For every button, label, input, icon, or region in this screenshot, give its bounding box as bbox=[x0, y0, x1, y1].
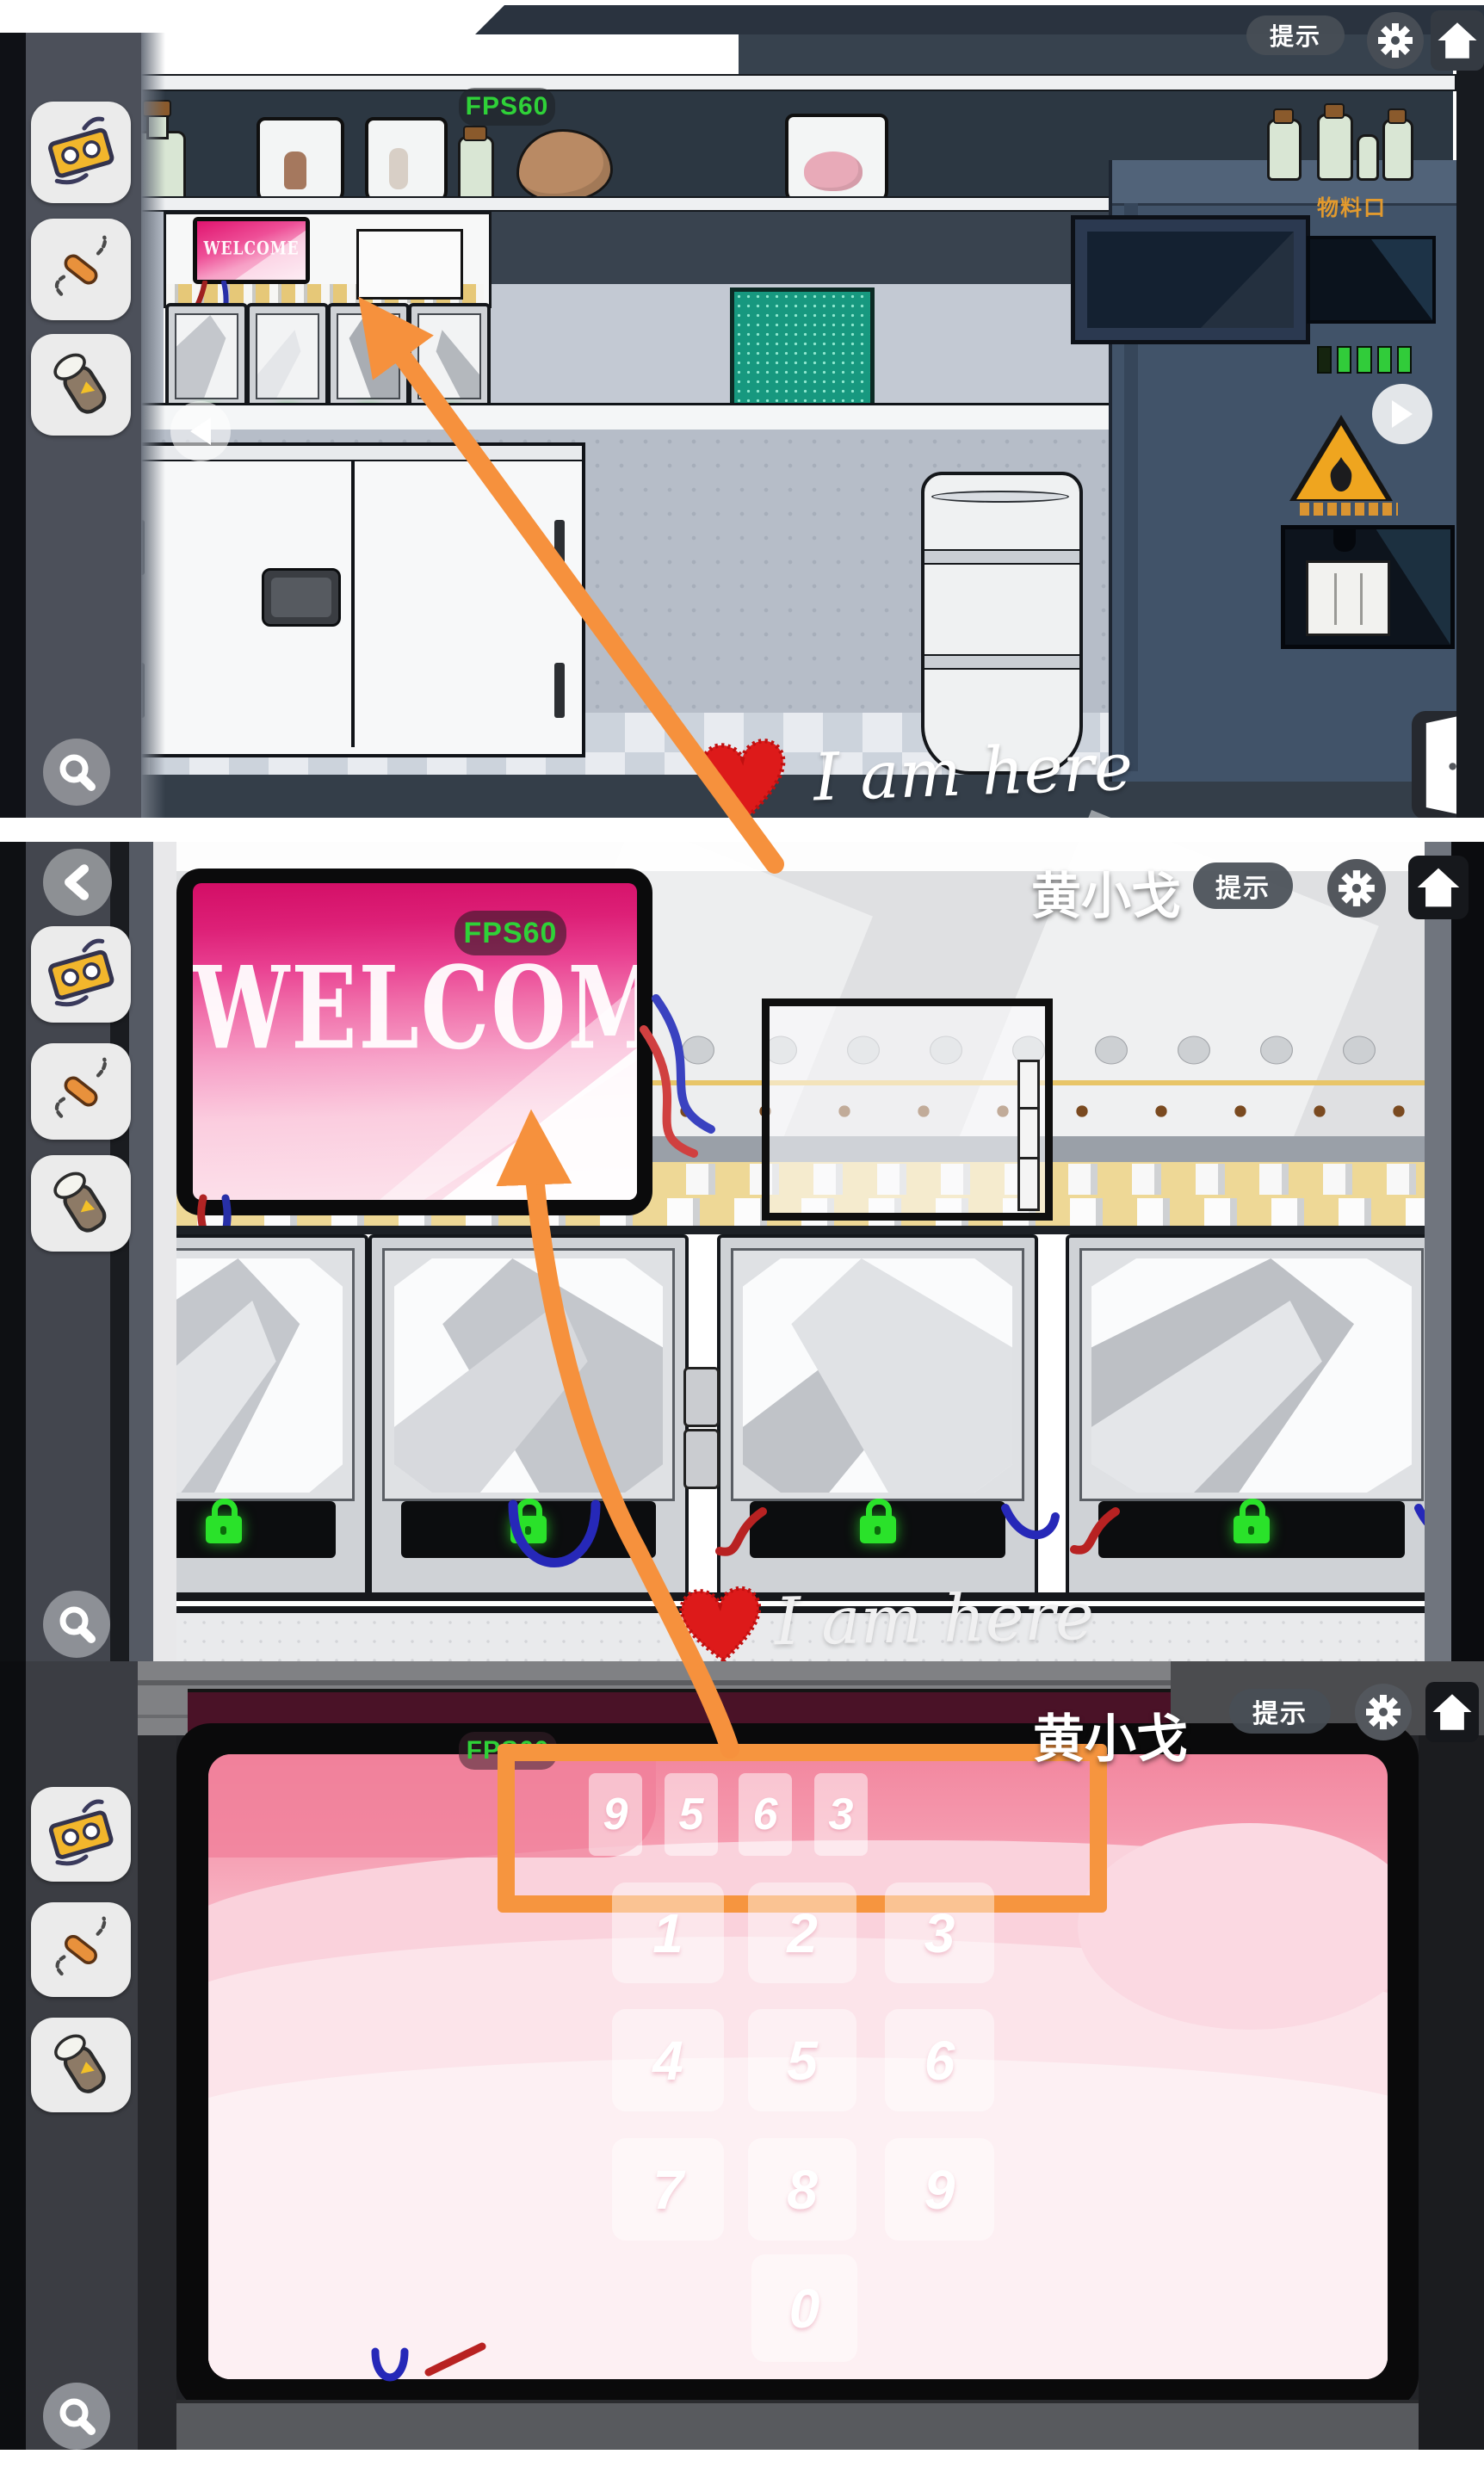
home-button[interactable] bbox=[1425, 1682, 1479, 1742]
hinge-plate-top bbox=[683, 1367, 720, 1427]
keypad-button-6[interactable]: 6 bbox=[885, 2009, 994, 2111]
slot-shade bbox=[1371, 239, 1432, 320]
panel-handle bbox=[1017, 1060, 1040, 1211]
inventory-syringe-button[interactable] bbox=[31, 219, 131, 320]
indicator-lights bbox=[1317, 346, 1412, 374]
specimen-bottle-icon bbox=[44, 348, 118, 422]
specimen-shape bbox=[338, 315, 399, 398]
nav-left-button[interactable] bbox=[170, 401, 231, 461]
home-icon bbox=[1435, 16, 1480, 65]
i-am-here-annotation: I am here bbox=[813, 728, 1135, 816]
machine-bottle-cap-2 bbox=[1324, 103, 1345, 119]
gear-icon bbox=[1376, 22, 1414, 59]
cassette-tape-icon bbox=[44, 115, 118, 189]
heart-annotation bbox=[680, 731, 809, 829]
inventory-syringe-button[interactable] bbox=[31, 1902, 131, 1997]
hint-button[interactable]: 提示 bbox=[1229, 1689, 1331, 1734]
player-name-label: 黄小戈 bbox=[954, 856, 1181, 911]
keypad-button-2[interactable]: 2 bbox=[748, 1882, 856, 1983]
machine-caption-text bbox=[1300, 503, 1398, 516]
light-on bbox=[1397, 346, 1412, 374]
keypad-button-8[interactable]: 8 bbox=[748, 2138, 856, 2241]
inventory-bottle-button[interactable] bbox=[31, 1155, 131, 1252]
white-box[interactable] bbox=[1306, 560, 1390, 636]
material-port-label: 物料口 bbox=[1317, 191, 1420, 215]
inventory-bottle-button[interactable] bbox=[31, 2018, 131, 2112]
triangle-left-icon bbox=[190, 417, 211, 445]
magnifier-icon bbox=[53, 748, 101, 796]
keypad-button-4[interactable]: 4 bbox=[612, 2009, 724, 2111]
gear-icon bbox=[1337, 869, 1376, 908]
cabinet-hinge-right-top bbox=[554, 520, 565, 575]
specimen-bottle-icon bbox=[45, 2029, 117, 2101]
home-icon bbox=[1430, 1688, 1475, 1736]
light-on bbox=[1377, 346, 1392, 374]
box-line bbox=[1360, 573, 1363, 625]
sidebar-streak bbox=[141, 33, 165, 819]
wall-monitor-box[interactable] bbox=[1071, 215, 1310, 344]
machine-top-bottle-2[interactable] bbox=[1317, 114, 1353, 181]
settings-button[interactable] bbox=[1327, 859, 1386, 918]
sidebar-column-dark bbox=[0, 1661, 29, 2450]
sidebar-column-dark bbox=[0, 842, 29, 1661]
zoom-search-button[interactable] bbox=[43, 739, 110, 806]
mini-window bbox=[256, 313, 319, 399]
keypad-button-0[interactable]: 0 bbox=[751, 2254, 857, 2362]
pale-specimen bbox=[389, 148, 408, 189]
panel1-lab-scene: WELCOME bbox=[0, 0, 1484, 819]
small-bottle-cap bbox=[463, 126, 487, 141]
specimen-shape bbox=[257, 315, 318, 398]
sidebar-lit-edge bbox=[153, 842, 176, 1661]
mini-window bbox=[175, 313, 238, 399]
cabinet-hinge-right-bottom bbox=[554, 663, 565, 718]
mini-window bbox=[417, 313, 481, 399]
hint-button[interactable]: 提示 bbox=[1193, 862, 1293, 909]
barrel-band-2 bbox=[924, 654, 1079, 670]
bottom-wires bbox=[344, 2341, 603, 2419]
settings-button[interactable] bbox=[1367, 12, 1424, 69]
mouse-specimen bbox=[284, 151, 306, 189]
cabinet-handle[interactable] bbox=[262, 568, 341, 627]
keypad-button-7[interactable]: 7 bbox=[612, 2138, 724, 2241]
pink-brain bbox=[804, 151, 863, 191]
mini-window bbox=[337, 313, 400, 399]
cassette-tape-icon bbox=[45, 1798, 117, 1870]
home-icon bbox=[1414, 862, 1462, 912]
nav-right-button[interactable] bbox=[1372, 384, 1432, 444]
triangle-right-icon bbox=[1392, 400, 1413, 428]
machine-top-bottle-1[interactable] bbox=[1267, 119, 1302, 181]
hint-button[interactable]: 提示 bbox=[1246, 15, 1345, 55]
magnifier-icon bbox=[53, 2392, 101, 2440]
syringe-wire-icon bbox=[44, 1054, 118, 1128]
open-panel-door[interactable] bbox=[762, 998, 1053, 1221]
sidebar-mid-bar bbox=[129, 842, 153, 1661]
i-am-here-annotation: I am here bbox=[774, 1578, 1094, 1660]
panel2-incubator-scene: WELCOME FPS60 bbox=[0, 842, 1484, 1661]
welcome-mini-display: WELCOME bbox=[197, 221, 306, 280]
chevron-left-icon bbox=[54, 859, 101, 906]
sidebar-inner-dark bbox=[138, 1735, 176, 2450]
right-edge-strip bbox=[1456, 34, 1484, 819]
barrel-band-1 bbox=[924, 549, 1079, 565]
specimen-bottle-icon bbox=[44, 1166, 118, 1240]
panel3-keypad-scene: FPS60 9 5 6 3 1 2 3 4 5 6 7 8 9 0 bbox=[0, 1661, 1484, 2479]
bottom-machinery-strip bbox=[129, 2400, 1420, 2455]
light-off bbox=[1317, 346, 1332, 374]
right-dark-strip bbox=[1451, 842, 1484, 1661]
welcome-mini-text: WELCOME bbox=[197, 238, 306, 260]
triple-screenshot-stage: WELCOME bbox=[0, 0, 1484, 2479]
keypad-button-3[interactable]: 3 bbox=[885, 1882, 994, 1983]
light-on bbox=[1337, 346, 1351, 374]
keypad-button-5[interactable]: 5 bbox=[748, 2009, 856, 2111]
machine-bottle-cap-1 bbox=[1273, 108, 1294, 124]
syringe-wire-icon bbox=[44, 232, 118, 306]
fps-counter: FPS60 bbox=[459, 88, 555, 126]
home-button[interactable] bbox=[1431, 10, 1484, 71]
circuit-board[interactable] bbox=[730, 287, 875, 413]
unit-window bbox=[394, 1258, 663, 1493]
flame-icon bbox=[1324, 454, 1358, 496]
machine-top-bottle-4[interactable] bbox=[1382, 119, 1413, 181]
unit-window bbox=[1091, 1258, 1412, 1493]
right-dark-strip bbox=[1419, 1735, 1484, 2450]
sidebar-column-dark bbox=[0, 33, 29, 819]
specimen-shape bbox=[176, 315, 237, 398]
keypad-button-9[interactable]: 9 bbox=[885, 2138, 994, 2241]
bottom-white-strip bbox=[0, 2450, 1484, 2479]
zoom-search-button[interactable] bbox=[43, 1591, 110, 1658]
box-line bbox=[1334, 573, 1337, 625]
handle-inner bbox=[271, 578, 331, 617]
light-on bbox=[1357, 346, 1371, 374]
heart-annotation bbox=[674, 1580, 769, 1669]
inventory-cassette-button[interactable] bbox=[31, 1787, 131, 1882]
shelf-top-frame bbox=[76, 74, 1456, 91]
inventory-bottle-button[interactable] bbox=[31, 334, 131, 436]
home-button[interactable] bbox=[1408, 856, 1469, 919]
inventory-syringe-button[interactable] bbox=[31, 1043, 131, 1140]
welcome-mini-screen[interactable]: WELCOME bbox=[193, 217, 310, 284]
wall-monitor-screen bbox=[1087, 232, 1294, 328]
material-port-slot[interactable] bbox=[1307, 236, 1436, 324]
whiteboard[interactable] bbox=[356, 229, 463, 300]
magnifier-icon bbox=[53, 1600, 101, 1648]
syringe-wire-icon bbox=[45, 1913, 117, 1986]
mid-dark-band bbox=[486, 212, 1109, 284]
incinerator-opening[interactable] bbox=[1281, 525, 1455, 649]
opening-notch bbox=[1333, 529, 1356, 552]
top-rail bbox=[138, 1226, 1453, 1234]
settings-button[interactable] bbox=[1355, 1684, 1412, 1740]
unit-window bbox=[743, 1258, 1012, 1493]
barrel[interactable] bbox=[921, 472, 1083, 775]
inventory-cassette-button[interactable] bbox=[31, 102, 131, 203]
barrel-lid-line bbox=[931, 491, 1069, 503]
player-name-label: 黄小戈 bbox=[957, 1697, 1188, 1756]
machine-top-bottle-3[interactable] bbox=[1357, 134, 1379, 181]
zoom-search-button[interactable] bbox=[43, 2383, 110, 2450]
gear-icon bbox=[1364, 1693, 1402, 1731]
screen-glint bbox=[1201, 232, 1294, 328]
cabinet-door-divider bbox=[351, 460, 355, 747]
small-bottle[interactable] bbox=[458, 136, 494, 203]
specimen-shape bbox=[419, 315, 479, 398]
floor-cabinet[interactable] bbox=[127, 442, 585, 757]
keypad-button-1[interactable]: 1 bbox=[612, 1882, 724, 1983]
inventory-cassette-button[interactable] bbox=[31, 926, 131, 1023]
machine-bottle-cap-4 bbox=[1388, 108, 1407, 124]
back-button[interactable] bbox=[43, 849, 112, 916]
panel-divider bbox=[0, 818, 1484, 842]
cassette-tape-icon bbox=[44, 937, 118, 1011]
